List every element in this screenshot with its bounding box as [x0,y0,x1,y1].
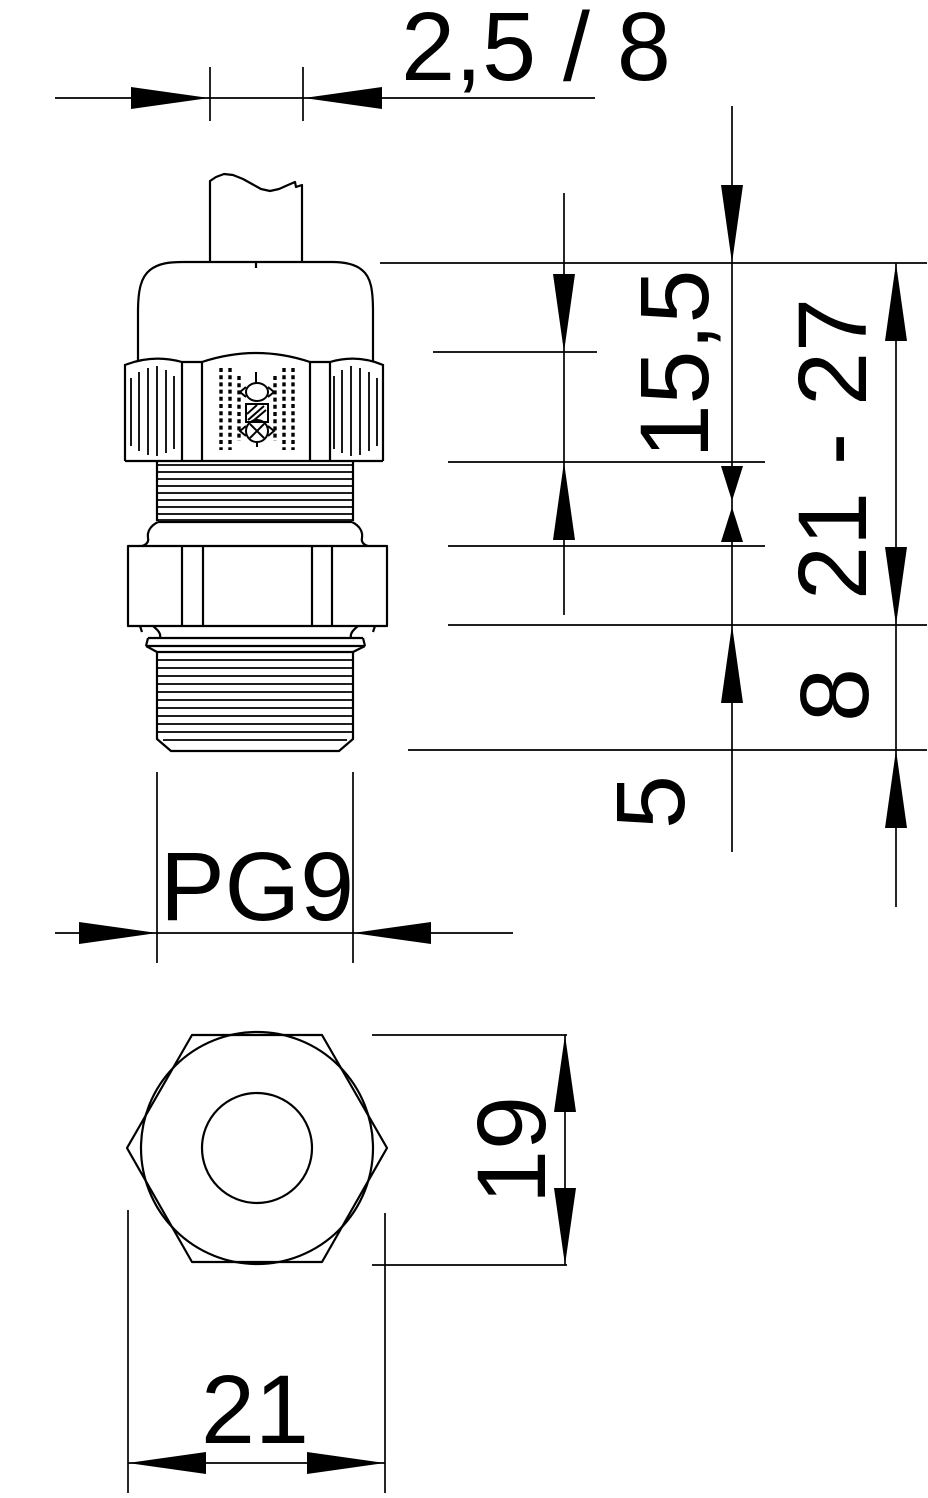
cap-hex [125,353,383,461]
flange-left-edge [146,638,148,646]
arrowhead [304,87,382,109]
dim-thread-length-label: 8 [780,668,889,722]
arrowhead [353,922,431,944]
dim-middle [721,106,743,852]
dim-cap-height: 15,5 [553,193,729,615]
dim-tip-length-label: 5 [596,775,705,829]
cap-hex-top-edge [125,353,383,365]
side-view [125,174,387,751]
dome-cap-outline [138,262,373,361]
arrowhead [721,507,743,542]
cable-hole-circle [202,1093,312,1203]
dim-across-corners: 21 [128,1210,385,1493]
approval-mark-hatch [247,405,266,421]
bottom-flange [146,626,365,652]
collar-left-curve [142,522,158,546]
technical-drawing-page: 2,5 / 8 [0,0,928,1498]
dim-across-corners-label: 21 [201,1355,309,1464]
bottom-thread-outline [157,652,353,751]
mid-thread [157,461,353,521]
arrowhead [128,1452,206,1474]
upper-collar [142,522,368,546]
cable-outline [210,174,302,262]
dim-thread-size-label: PG9 [160,832,354,941]
right-dimensions: 15,5 21 - 27 8 5 [380,106,927,907]
collar-right-curve [352,522,368,546]
flange-right-neck [351,626,358,638]
arrowhead [885,547,907,625]
arrowhead [553,462,575,540]
arrowhead [79,922,157,944]
approval-mark-cross [250,424,264,438]
dim-across-flats: 19 [372,1035,576,1265]
bottom-thread [157,652,353,751]
flange-left-neck [153,626,160,638]
dim-cap-height-label: 15,5 [620,270,729,459]
arrowhead [885,750,907,828]
dim-clamping-range-label: 2,5 / 8 [401,0,671,101]
arrowhead [131,87,209,109]
dim-overall-height-label: 21 - 27 [778,298,887,600]
body-hex [128,546,387,632]
dim-overall-height: 21 - 27 [778,263,907,907]
arrowhead [721,625,743,703]
arrowhead [553,274,575,352]
approval-mark-icon [246,383,268,401]
cap-circle [141,1032,373,1264]
arrowhead [307,1452,385,1474]
certification-marks [221,368,293,450]
dim-clamping-range: 2,5 / 8 [55,0,671,121]
body-hex-outline [128,546,387,626]
cable-gland-drawing: 2,5 / 8 [0,0,928,1498]
arrowhead [721,185,743,263]
dim-thread-size: PG9 [55,772,513,963]
flange-right-edge [363,638,365,646]
dim-across-flats-label: 19 [457,1096,566,1204]
hex-outline [127,1035,387,1262]
arrowhead [885,263,907,341]
arrowhead [721,466,743,501]
top-view [127,1032,387,1264]
